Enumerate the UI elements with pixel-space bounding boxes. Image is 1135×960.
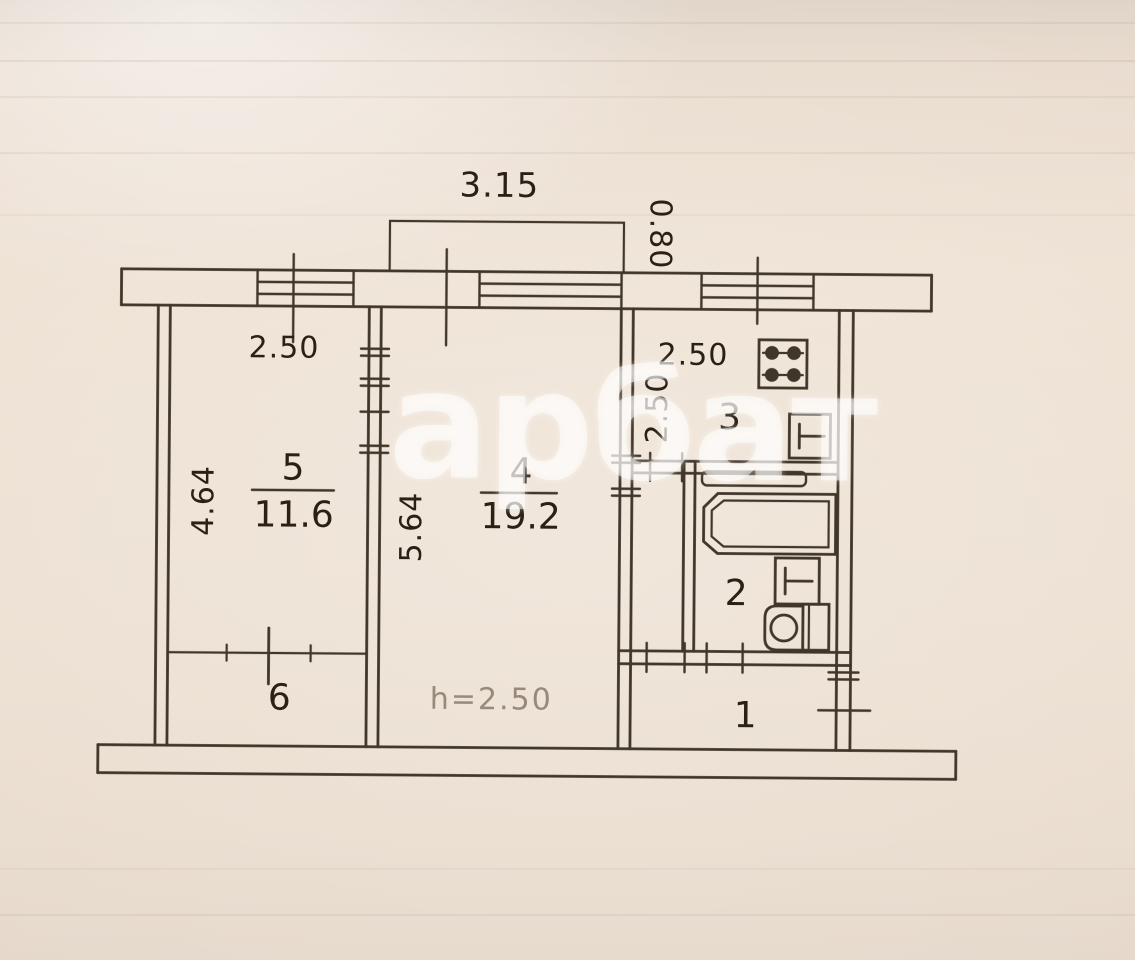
room6-divider (167, 627, 366, 685)
room2-number: 2 (725, 573, 748, 614)
room1-number: 1 (734, 695, 757, 736)
left-exterior-wall (155, 305, 170, 745)
floor-plan: 3.15 0.80 2.50 4.64 5 11.6 5.64 4 19.2 2… (0, 0, 1135, 960)
entrance-door-opening (818, 672, 870, 710)
room5-area: 11.6 (253, 494, 333, 536)
agency-watermark: арбат (388, 351, 876, 505)
hall-top-wall (619, 651, 851, 666)
room5-number: 5 (281, 448, 304, 489)
ceiling-height-note: h=2.50 (430, 682, 553, 718)
dim-room5-width: 2.50 (248, 330, 319, 366)
window-icon (257, 248, 814, 348)
partition-room5-room4 (366, 307, 381, 747)
top-exterior-wall (121, 269, 931, 311)
dim-room5-height: 4.64 (186, 465, 222, 536)
toilet-icon (765, 604, 829, 651)
dim-balcony-depth: 0.80 (642, 198, 678, 269)
room6-number: 6 (268, 677, 291, 718)
door-opening-ticks (360, 349, 389, 453)
balcony-outline (390, 221, 624, 273)
dim-balcony-width: 3.15 (459, 165, 539, 206)
floor-plan-photo: 3.15 0.80 2.50 4.64 5 11.6 5.64 4 19.2 2… (0, 0, 1135, 960)
bathroom-sink-icon (775, 558, 819, 604)
bottom-exterior-wall (98, 745, 956, 780)
